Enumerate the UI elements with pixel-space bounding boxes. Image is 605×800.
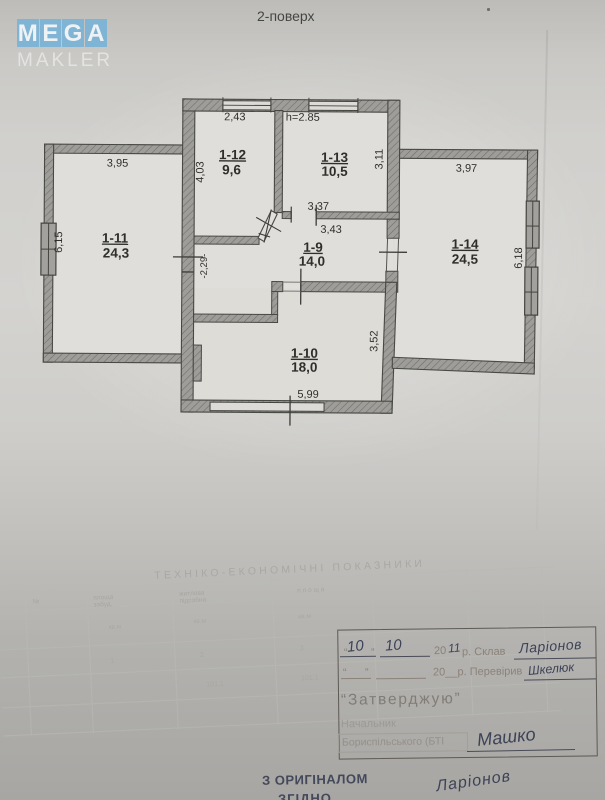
- svg-text:п л о щ а: п л о щ а: [297, 586, 325, 594]
- svg-text:кв.м: кв.м: [193, 618, 206, 626]
- svg-text:101,1: 101,1: [206, 681, 224, 689]
- svg-text:кв.м: кв.м: [108, 623, 121, 631]
- svg-text:3: 3: [300, 645, 304, 652]
- svg-text:1: 1: [110, 658, 114, 665]
- svg-text:2: 2: [200, 652, 204, 659]
- svg-text:забуд.: забуд.: [93, 600, 112, 609]
- svg-text:підсобна: підсобна: [179, 596, 206, 605]
- svg-text:101,1: 101,1: [301, 675, 319, 683]
- svg-text:№: №: [32, 598, 39, 605]
- svg-text:кв.м: кв.м: [298, 613, 311, 621]
